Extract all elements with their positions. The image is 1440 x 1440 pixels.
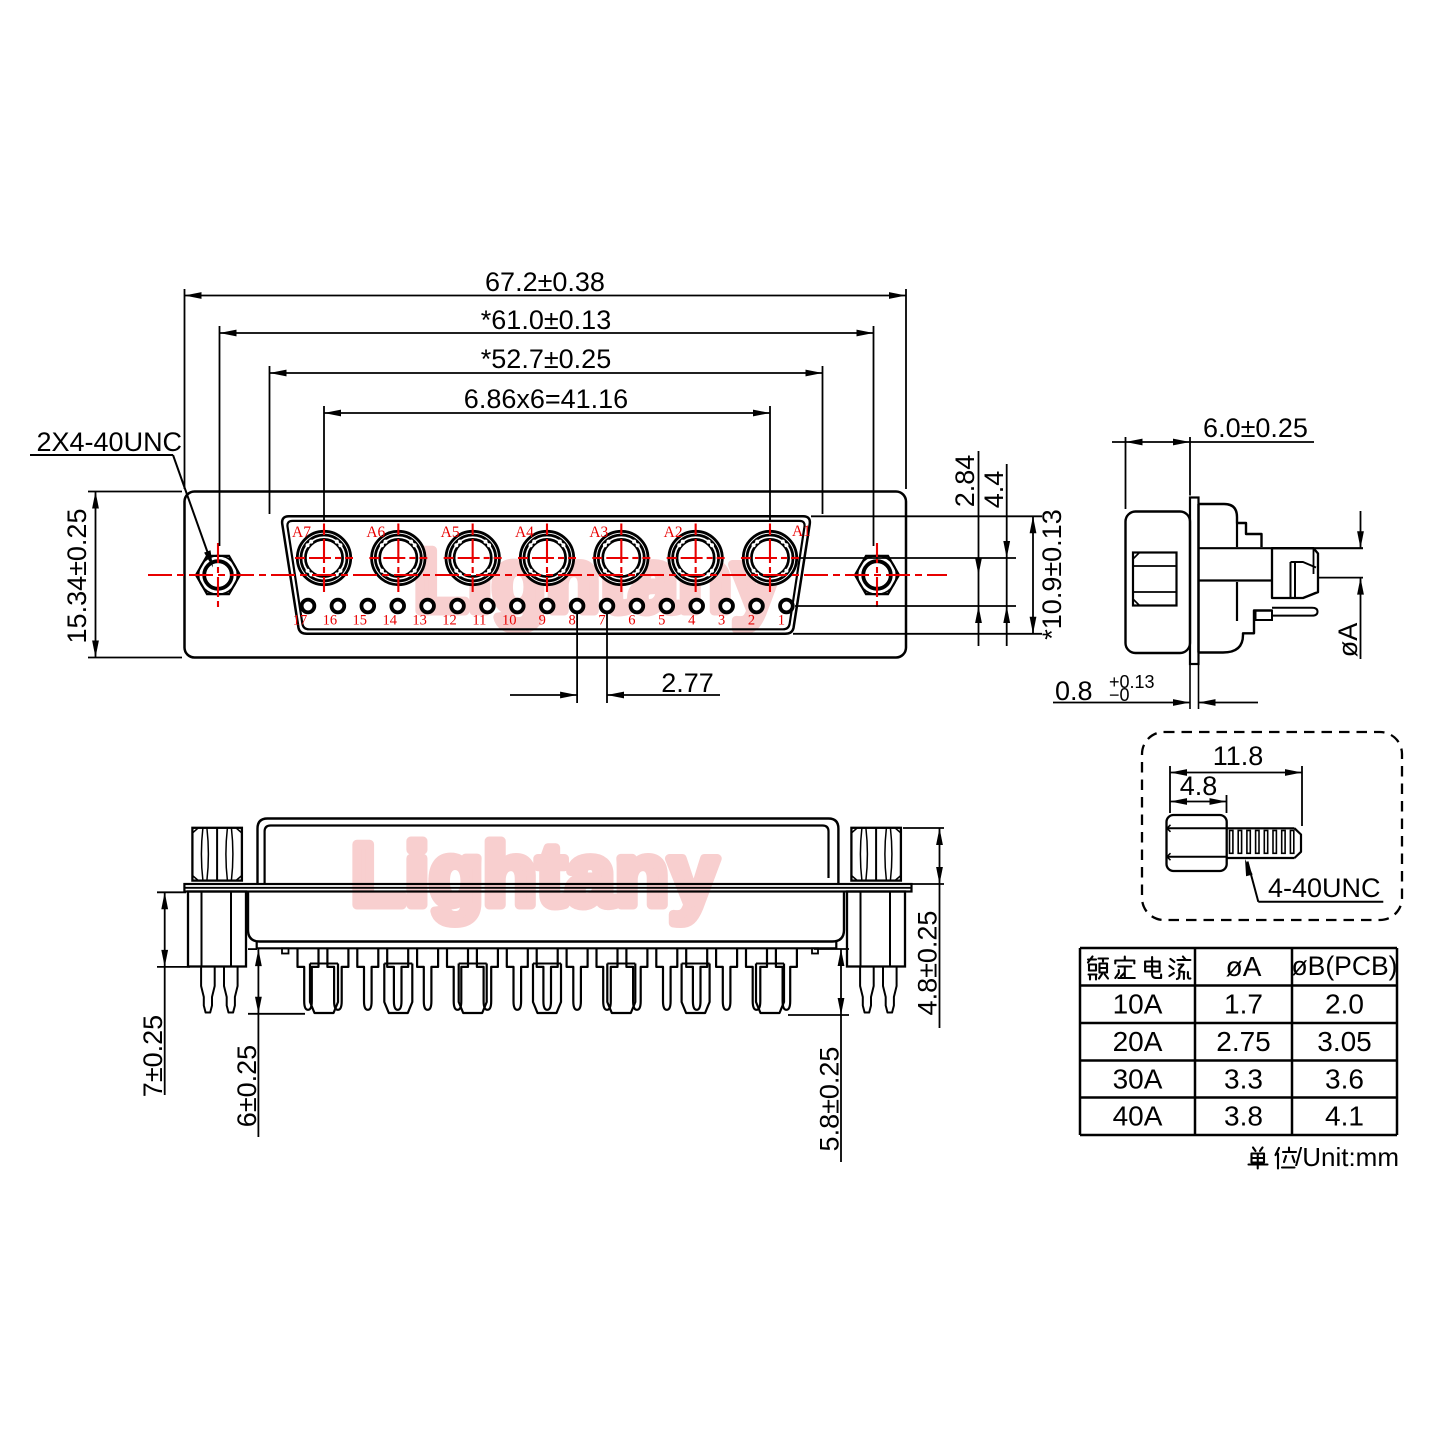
svg-text:16: 16 [323, 613, 338, 629]
svg-text:15.34±0.25: 15.34±0.25 [62, 509, 92, 644]
svg-text:6±0.25: 6±0.25 [232, 1045, 262, 1127]
svg-text:6: 6 [628, 613, 635, 629]
svg-text:A4: A4 [515, 524, 534, 541]
svg-text:4.8±0.25: 4.8±0.25 [913, 911, 943, 1016]
svg-text:14: 14 [382, 613, 397, 629]
svg-text:40A: 40A [1113, 1101, 1163, 1132]
svg-text:A2: A2 [664, 524, 683, 541]
svg-text:12: 12 [442, 613, 457, 629]
svg-text:A5: A5 [441, 524, 460, 541]
svg-text:9: 9 [539, 613, 546, 629]
svg-text:10A: 10A [1113, 989, 1163, 1020]
svg-text:A3: A3 [589, 524, 608, 541]
svg-text:67.2±0.38: 67.2±0.38 [485, 267, 605, 297]
svg-text:3.8: 3.8 [1224, 1101, 1263, 1132]
svg-text:2.0: 2.0 [1325, 989, 1364, 1020]
svg-text:øB(PCB): øB(PCB) [1292, 951, 1398, 981]
svg-text:15: 15 [353, 613, 368, 629]
svg-text:A7: A7 [292, 524, 311, 541]
svg-text:30A: 30A [1113, 1063, 1163, 1094]
svg-text:*61.0±0.13: *61.0±0.13 [481, 305, 611, 335]
svg-text:2.77: 2.77 [661, 668, 714, 698]
svg-text:A1: A1 [792, 523, 811, 540]
svg-text:0.8: 0.8 [1055, 676, 1093, 706]
svg-text:11: 11 [472, 613, 486, 629]
svg-text:2: 2 [748, 613, 755, 629]
svg-text:17: 17 [293, 613, 308, 629]
svg-text:2.84: 2.84 [950, 455, 980, 508]
svg-text:4: 4 [688, 613, 696, 629]
svg-text:øA: øA [1226, 951, 1262, 982]
svg-text:3.6: 3.6 [1325, 1063, 1364, 1094]
svg-text:*10.9±0.13: *10.9±0.13 [1037, 509, 1067, 639]
svg-text:6.86x6=41.16: 6.86x6=41.16 [464, 384, 628, 414]
svg-text:2.75: 2.75 [1216, 1026, 1271, 1057]
svg-text:Lightany: Lightany [351, 825, 718, 924]
svg-text:8: 8 [568, 613, 575, 629]
svg-text:3.05: 3.05 [1317, 1026, 1372, 1057]
svg-text:/Unit:mm: /Unit:mm [1295, 1142, 1399, 1172]
svg-text:7±0.25: 7±0.25 [138, 1015, 168, 1097]
svg-text:øA: øA [1333, 623, 1363, 658]
svg-text:2X4-40UNC: 2X4-40UNC [37, 427, 183, 457]
svg-text:A6: A6 [366, 524, 385, 541]
svg-text:4.4: 4.4 [979, 471, 1009, 509]
svg-text:5: 5 [658, 613, 665, 629]
svg-text:4-40UNC: 4-40UNC [1268, 873, 1381, 903]
svg-text:13: 13 [412, 613, 427, 629]
svg-text:1: 1 [778, 613, 785, 629]
svg-text:−0: −0 [1109, 685, 1130, 705]
svg-text:10: 10 [502, 613, 517, 629]
svg-text:4.8: 4.8 [1180, 771, 1218, 801]
svg-text:5.8±0.25: 5.8±0.25 [815, 1047, 845, 1152]
svg-text:3.3: 3.3 [1224, 1063, 1263, 1094]
svg-text:20A: 20A [1113, 1026, 1163, 1057]
svg-text:7: 7 [598, 613, 605, 629]
svg-text:4.1: 4.1 [1325, 1101, 1364, 1132]
svg-text:11.8: 11.8 [1213, 741, 1264, 771]
svg-text:6.0±0.25: 6.0±0.25 [1203, 413, 1308, 443]
svg-text:1.7: 1.7 [1224, 989, 1263, 1020]
svg-text:*52.7±0.25: *52.7±0.25 [481, 344, 611, 374]
svg-text:3: 3 [718, 613, 725, 629]
